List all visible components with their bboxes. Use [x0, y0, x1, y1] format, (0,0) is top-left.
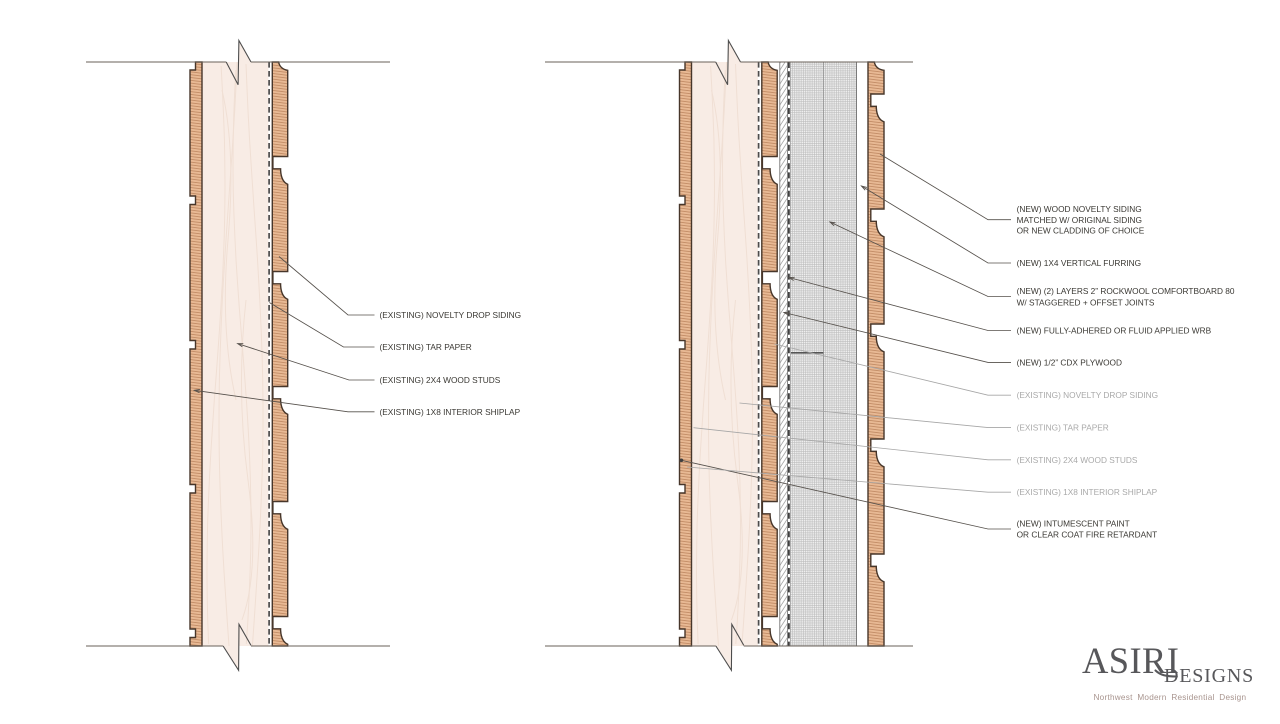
svg-text:(EXISTING) 1X8 INTERIOR SHIPLA: (EXISTING) 1X8 INTERIOR SHIPLAP — [1017, 487, 1158, 497]
svg-text:OR NEW CLADDING OF CHOICE: OR NEW CLADDING OF CHOICE — [1017, 225, 1145, 235]
svg-text:W/ STAGGERED + OFFSET JOINTS: W/ STAGGERED + OFFSET JOINTS — [1017, 298, 1155, 308]
svg-text:(EXISTING) 2X4 WOOD STUDS: (EXISTING) 2X4 WOOD STUDS — [1017, 455, 1138, 465]
svg-text:(NEW) 1X4 VERTICAL FURRING: (NEW) 1X4 VERTICAL FURRING — [1017, 258, 1141, 268]
svg-text:(EXISTING) NOVELTY DROP SIDING: (EXISTING) NOVELTY DROP SIDING — [380, 310, 522, 320]
svg-text:(NEW) 1/2” CDX PLYWOOD: (NEW) 1/2” CDX PLYWOOD — [1017, 357, 1122, 367]
svg-text:(EXISTING) TAR PAPER: (EXISTING) TAR PAPER — [1017, 423, 1109, 433]
svg-text:(NEW) (2) LAYERS 2” ROCKWOOL C: (NEW) (2) LAYERS 2” ROCKWOOL COMFORTBOAR… — [1017, 286, 1235, 296]
svg-text:(EXISTING) NOVELTY DROP SIDING: (EXISTING) NOVELTY DROP SIDING — [1017, 390, 1159, 400]
svg-text:(EXISTING) 1X8 INTERIOR SHIPLA: (EXISTING) 1X8 INTERIOR SHIPLAP — [380, 407, 521, 417]
svg-text:(NEW) WOOD NOVELTY SIDING: (NEW) WOOD NOVELTY SIDING — [1017, 204, 1142, 214]
svg-text:(EXISTING) 2X4 WOOD STUDS: (EXISTING) 2X4 WOOD STUDS — [380, 375, 501, 385]
svg-text:Northwest Modern Residential: Northwest Modern Residential Design — [1094, 693, 1247, 702]
svg-text:(EXISTING) TAR PAPER: (EXISTING) TAR PAPER — [380, 342, 472, 352]
svg-text:(NEW) FULLY-ADHERED OR FLUID A: (NEW) FULLY-ADHERED OR FLUID APPLIED WRB — [1017, 326, 1212, 336]
svg-text:OR CLEAR COAT FIRE RETARDANT: OR CLEAR COAT FIRE RETARDANT — [1017, 529, 1158, 539]
svg-text:(NEW) INTUMESCENT PAINT: (NEW) INTUMESCENT PAINT — [1017, 518, 1130, 528]
svg-text:MATCHED W/ ORIGINAL SIDING: MATCHED W/ ORIGINAL SIDING — [1017, 215, 1142, 225]
